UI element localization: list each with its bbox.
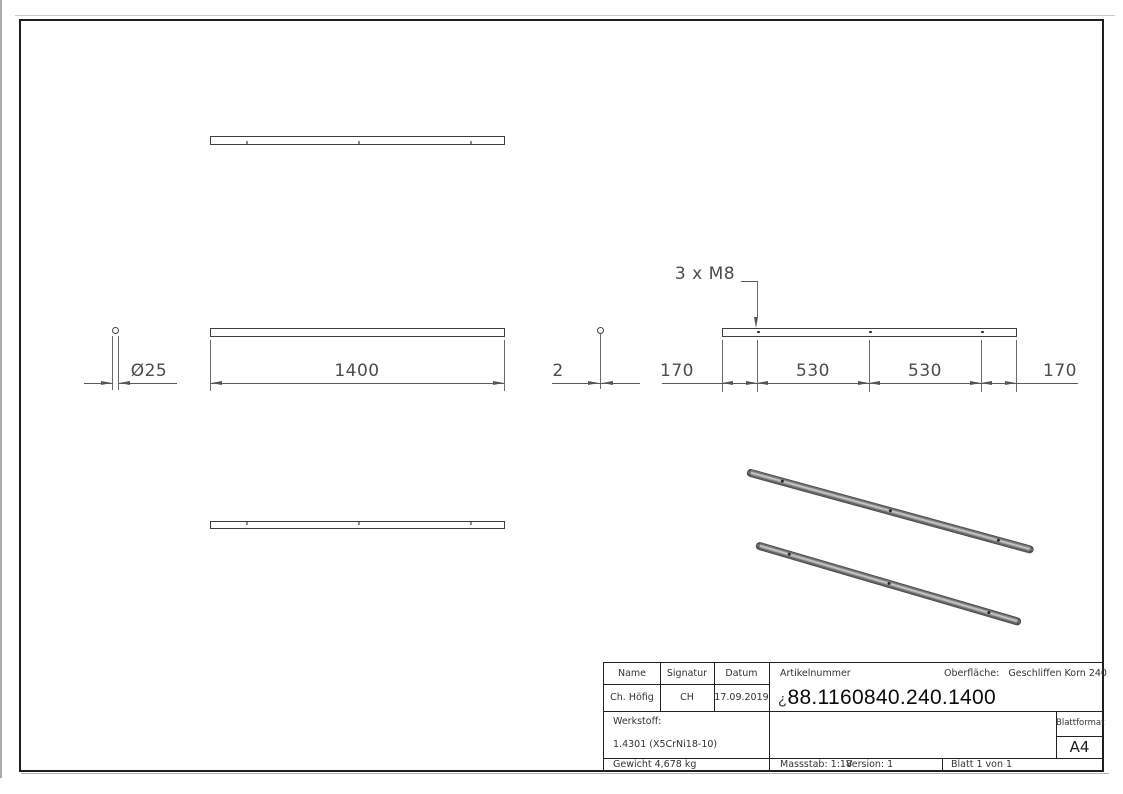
drawing-sheet: Ø25 1400 2 3 x M8 170 530 530 170 — [0, 0, 1123, 794]
drawing-frame — [19, 19, 1104, 772]
werkstoff-value: 1.4301 (X5CrNi18-10) — [613, 739, 717, 750]
dim-arrow — [746, 381, 757, 385]
hole-mark — [780, 479, 784, 483]
dim-arrow — [757, 381, 768, 385]
dim-label-chain-1: 530 — [783, 361, 843, 381]
rod-end-cap — [1029, 546, 1033, 553]
extension-line — [1016, 340, 1017, 392]
rod-end-cap — [756, 542, 761, 549]
hole-mark — [246, 141, 248, 144]
dim-label-chain-2: 530 — [895, 361, 955, 381]
dim-label-thickness: 2 — [549, 361, 567, 381]
oberflaeche-value: Geschliffen Korn 240 — [1008, 668, 1107, 679]
dim-arrow — [722, 381, 733, 385]
name-value: Ch. Höfig — [604, 684, 660, 711]
gewicht-value: Gewicht 4,678 kg — [613, 758, 696, 771]
blattformat-value: A4 — [1056, 736, 1103, 758]
dim-label-chain-0: 170 — [655, 361, 699, 381]
leader-arrow — [754, 317, 758, 328]
bottom-view-bar — [210, 521, 505, 529]
artikelnummer-label: Artikelnummer — [780, 668, 851, 679]
hole-mark — [358, 141, 360, 144]
hole-mark — [869, 331, 872, 334]
rod-end-cap — [747, 469, 751, 476]
dim-arrow — [493, 381, 504, 385]
front-view-bar — [210, 328, 505, 337]
dim-arrow — [588, 381, 599, 385]
massstab-value: Massstab: 1:18 — [780, 758, 852, 771]
datum-value: 17.09.2019 — [714, 684, 769, 711]
blattformat-label: Blattformat — [1056, 711, 1103, 736]
frame-top-shadow — [15, 15, 1115, 16]
hole-callout-label: 3 x M8 — [671, 264, 739, 284]
signatur-label: Signatur — [660, 663, 714, 684]
dim-arrow — [119, 381, 130, 385]
rod-end-cap — [1016, 618, 1021, 625]
hole-mark — [889, 509, 893, 513]
hole-mark — [757, 331, 760, 334]
thickness-view-circle — [597, 327, 604, 334]
top-view-bar — [210, 136, 505, 145]
hole-mark — [358, 522, 360, 525]
artikelnummer-value: ¿88.1160840.240.1400 — [778, 687, 996, 711]
hole-mark — [246, 522, 248, 525]
dim-label-chain-3: 170 — [1030, 361, 1090, 381]
leader-line — [757, 281, 758, 317]
title-block-line — [942, 758, 943, 771]
signatur-value: CH — [660, 684, 714, 711]
frame-bottom-shadow — [21, 773, 1109, 774]
oberflaeche-label: Oberfläche: — [944, 668, 999, 679]
hole-mark — [981, 331, 984, 334]
dim-label-length: 1400 — [327, 361, 387, 381]
title-block-line — [769, 663, 770, 771]
dim-arrow — [869, 381, 880, 385]
title-block-line — [604, 711, 1103, 712]
dim-arrow — [602, 381, 613, 385]
dim-arrow — [858, 381, 869, 385]
hole-view-bar — [722, 328, 1017, 337]
hole-mark — [470, 522, 472, 525]
hole-mark — [787, 552, 791, 556]
dim-label-diameter: Ø25 — [126, 361, 172, 381]
name-label: Name — [604, 663, 660, 684]
dim-arrow — [101, 381, 112, 385]
version-value: Version: 1 — [846, 758, 893, 771]
dimension-line — [211, 383, 505, 384]
werkstoff-label: Werkstoff: — [613, 716, 661, 727]
end-view-circle — [112, 327, 119, 334]
blatt-value: Blatt 1 von 1 — [951, 758, 1012, 771]
leader-line — [741, 281, 758, 282]
extension-line — [112, 336, 113, 390]
dim-arrow — [970, 381, 981, 385]
hole-mark — [470, 141, 472, 144]
datum-label: Datum — [714, 663, 769, 684]
screen-edge-line — [0, 0, 2, 778]
title-block: Name Signatur Datum Artikelnummer Oberfl… — [603, 662, 1103, 771]
hole-mark — [997, 538, 1001, 542]
hole-mark — [887, 582, 891, 586]
dim-arrow — [211, 381, 222, 385]
dim-arrow — [1005, 381, 1016, 385]
dim-arrow — [981, 381, 992, 385]
hole-mark — [987, 611, 991, 615]
extension-line — [600, 334, 601, 389]
oberflaeche: Oberfläche: Geschliffen Korn 240 — [944, 668, 1107, 679]
